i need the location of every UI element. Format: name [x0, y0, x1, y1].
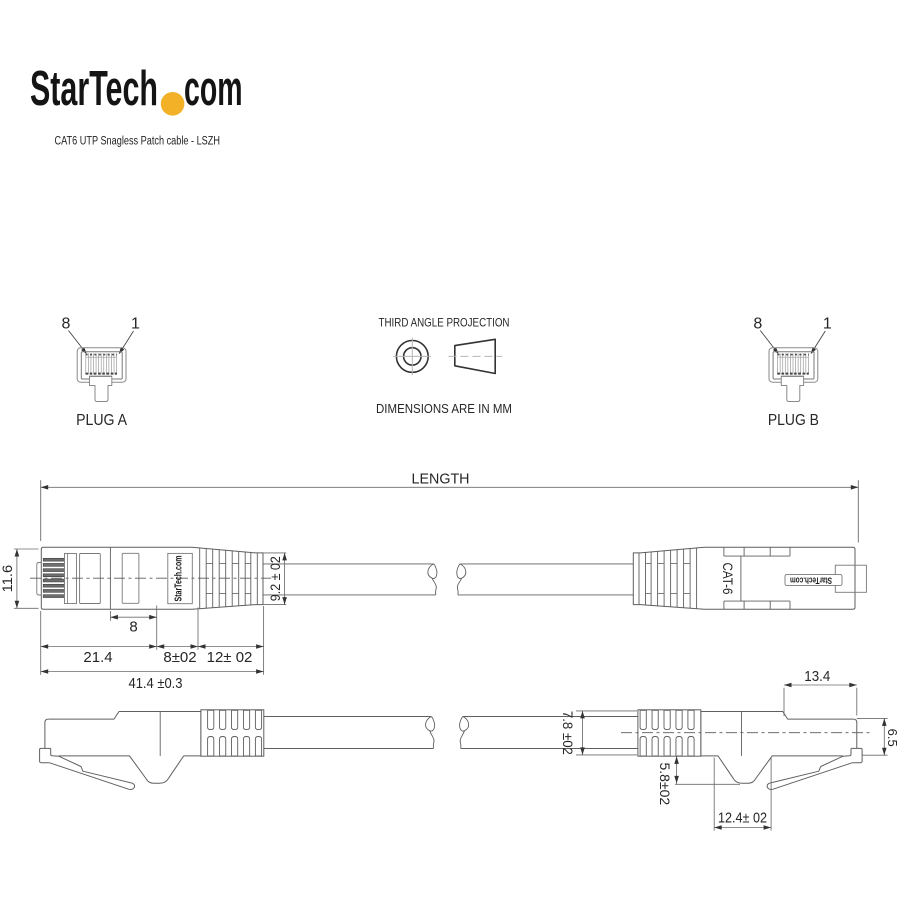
svg-text:com: com [184, 62, 243, 116]
svg-text:THIRD ANGLE PROJECTION: THIRD ANGLE PROJECTION [379, 316, 510, 330]
svg-text:DIMENSIONS ARE IN MM: DIMENSIONS ARE IN MM [376, 402, 512, 416]
svg-text:LENGTH: LENGTH [412, 470, 470, 487]
svg-text:11.6: 11.6 [0, 565, 15, 593]
svg-text:1: 1 [823, 316, 832, 333]
svg-text:6.5: 6.5 [885, 729, 900, 747]
svg-text:12.4± 02: 12.4± 02 [718, 809, 767, 826]
svg-text:8: 8 [753, 315, 762, 332]
svg-text:8: 8 [129, 618, 137, 635]
svg-text:1: 1 [131, 316, 140, 333]
svg-text:7.8 ±02: 7.8 ±02 [560, 711, 576, 755]
svg-text:41.4 ±0.3: 41.4 ±0.3 [129, 675, 183, 692]
svg-text:CAT-6: CAT-6 [720, 563, 735, 595]
svg-text:5.8±02: 5.8±02 [657, 762, 673, 805]
svg-text:8±02: 8±02 [163, 649, 196, 666]
svg-text:21.4: 21.4 [83, 649, 112, 666]
svg-text:13.4: 13.4 [804, 668, 830, 685]
svg-text:CAT6 UTP Snagless Patch cable: CAT6 UTP Snagless Patch cable - LSZH [55, 135, 221, 147]
svg-text:PLUG B: PLUG B [768, 412, 819, 429]
svg-text:12± 02: 12± 02 [207, 649, 253, 666]
svg-text:StarTech: StarTech [30, 62, 158, 116]
svg-text:PLUG A: PLUG A [76, 412, 128, 429]
svg-text:8: 8 [62, 315, 71, 332]
svg-text:StarTech.com: StarTech.com [790, 576, 832, 586]
svg-text:9.2 ± 02: 9.2 ± 02 [267, 556, 283, 601]
